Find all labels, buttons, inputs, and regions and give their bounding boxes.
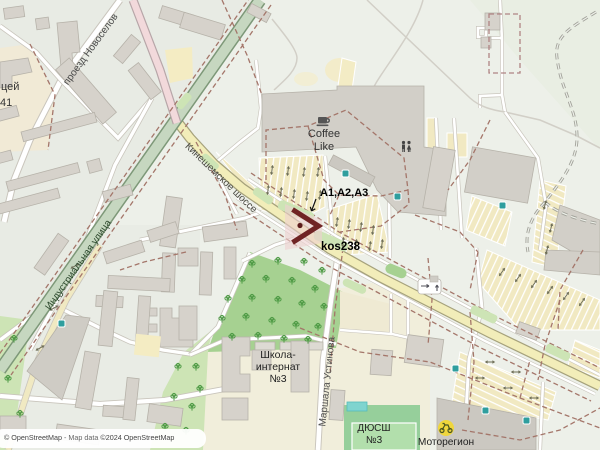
svg-text:A1,A2,A3: A1,A2,A3 [320, 187, 368, 199]
svg-text:Coffee: Coffee [308, 128, 340, 140]
svg-text:© OpenStreetMap - Map data ©20: © OpenStreetMap - Map data ©2024 OpenStr… [4, 433, 174, 442]
svg-text:ДЮСШ: ДЮСШ [357, 423, 390, 434]
svg-text:Моторегион: Моторегион [418, 437, 474, 448]
svg-text:kos238: kos238 [321, 241, 361, 253]
svg-text:Like: Like [314, 141, 334, 153]
svg-text:41: 41 [0, 97, 12, 109]
svg-text:цей: цей [1, 81, 19, 93]
svg-text:№3: №3 [366, 435, 383, 446]
svg-text:Школа-: Школа- [260, 349, 296, 361]
svg-text:№3: №3 [269, 373, 286, 385]
svg-text:интернат: интернат [256, 361, 300, 373]
